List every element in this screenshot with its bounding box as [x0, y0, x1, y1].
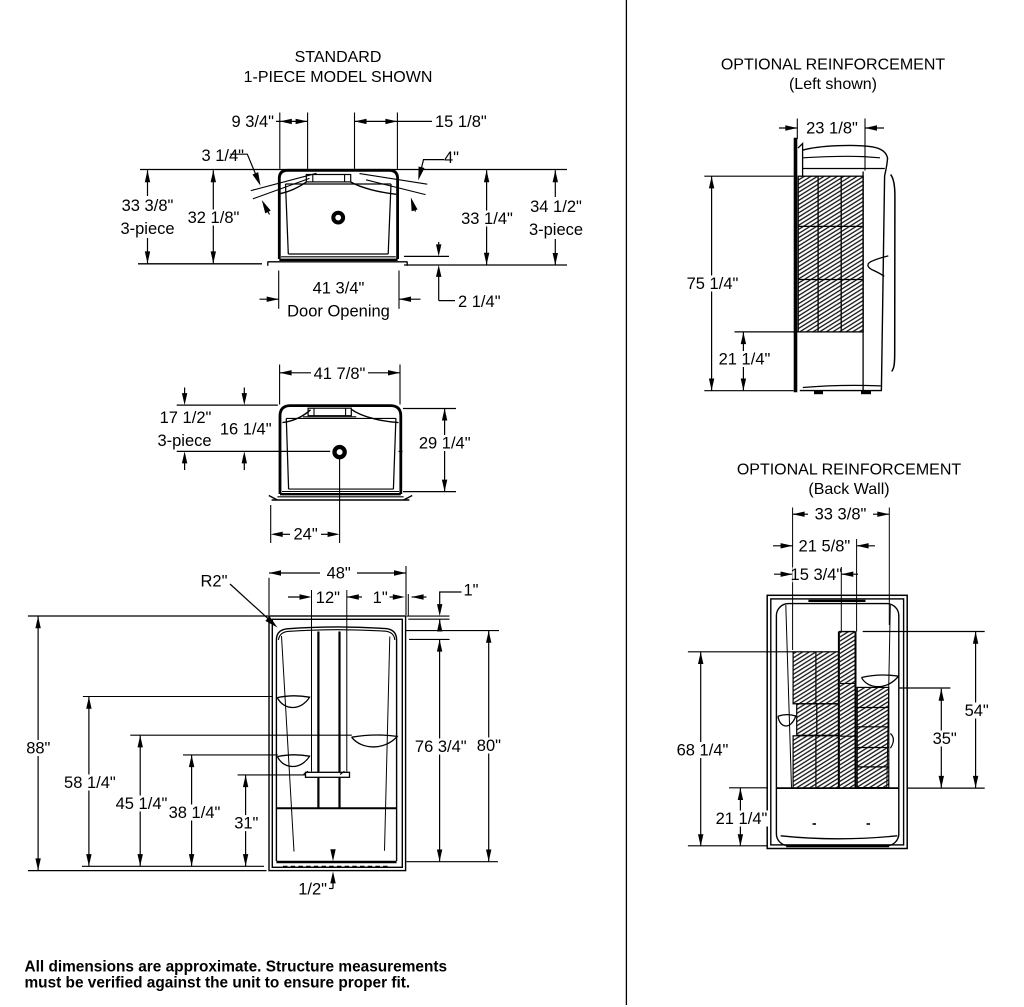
- svg-text:48": 48": [327, 565, 351, 583]
- svg-text:Door Opening: Door Opening: [287, 303, 390, 321]
- svg-text:17 1/2": 17 1/2": [160, 409, 212, 427]
- svg-text:3-piece: 3-piece: [529, 221, 583, 239]
- svg-text:1-PIECE MODEL SHOWN: 1-PIECE MODEL SHOWN: [244, 69, 433, 86]
- svg-text:29 1/4": 29 1/4": [419, 435, 471, 453]
- svg-text:35": 35": [933, 730, 957, 748]
- svg-text:(Left shown): (Left shown): [789, 76, 877, 93]
- svg-text:24": 24": [293, 526, 317, 544]
- svg-text:34 1/2": 34 1/2": [530, 198, 582, 216]
- svg-text:23 1/8": 23 1/8": [806, 120, 858, 138]
- svg-text:38 1/4": 38 1/4": [169, 804, 221, 822]
- svg-text:must be verified against the u: must be verified against the unit to ens…: [25, 975, 411, 992]
- svg-text:16 1/4": 16 1/4": [220, 421, 272, 439]
- svg-text:OPTIONAL REINFORCEMENT: OPTIONAL REINFORCEMENT: [737, 462, 962, 479]
- svg-text:76 3/4": 76 3/4": [415, 738, 467, 756]
- svg-text:33 3/8": 33 3/8": [122, 197, 174, 215]
- svg-text:21 1/4": 21 1/4": [716, 810, 768, 828]
- svg-text:3-piece: 3-piece: [157, 432, 211, 450]
- svg-text:41 7/8": 41 7/8": [314, 365, 366, 383]
- svg-text:9 3/4": 9 3/4": [231, 113, 274, 131]
- svg-text:75 1/4": 75 1/4": [687, 275, 739, 293]
- svg-text:41 3/4": 41 3/4": [313, 280, 365, 298]
- svg-text:54": 54": [965, 702, 989, 720]
- svg-text:1": 1": [464, 582, 479, 600]
- svg-text:All dimensions are approximate: All dimensions are approximate. Structur…: [25, 959, 448, 976]
- svg-text:80": 80": [477, 737, 501, 755]
- svg-text:1/2": 1/2": [298, 881, 327, 899]
- svg-text:15 1/8": 15 1/8": [435, 113, 487, 131]
- svg-text:88": 88": [26, 740, 50, 758]
- svg-text:1": 1": [373, 589, 388, 607]
- svg-text:21 1/4": 21 1/4": [719, 351, 771, 369]
- svg-text:68 1/4": 68 1/4": [677, 742, 729, 760]
- svg-text:33 3/8": 33 3/8": [815, 506, 867, 524]
- svg-text:31": 31": [234, 815, 258, 833]
- svg-text:21 5/8": 21 5/8": [799, 537, 851, 555]
- svg-text:12": 12": [316, 589, 340, 607]
- svg-text:3-piece: 3-piece: [120, 220, 174, 238]
- svg-text:2 1/4": 2 1/4": [458, 293, 501, 311]
- svg-text:33 1/4": 33 1/4": [461, 210, 513, 228]
- svg-text:OPTIONAL REINFORCEMENT: OPTIONAL REINFORCEMENT: [721, 57, 946, 74]
- svg-text:4": 4": [444, 149, 459, 167]
- svg-text:3 1/4": 3 1/4": [201, 147, 244, 165]
- svg-text:(Back Wall): (Back Wall): [808, 481, 889, 498]
- svg-text:R2": R2": [201, 573, 228, 591]
- svg-text:32 1/8": 32 1/8": [188, 209, 240, 227]
- svg-text:STANDARD: STANDARD: [295, 49, 382, 66]
- svg-text:58 1/4": 58 1/4": [64, 774, 116, 792]
- svg-text:45 1/4": 45 1/4": [116, 795, 168, 813]
- svg-text:15 3/4": 15 3/4": [791, 566, 843, 584]
